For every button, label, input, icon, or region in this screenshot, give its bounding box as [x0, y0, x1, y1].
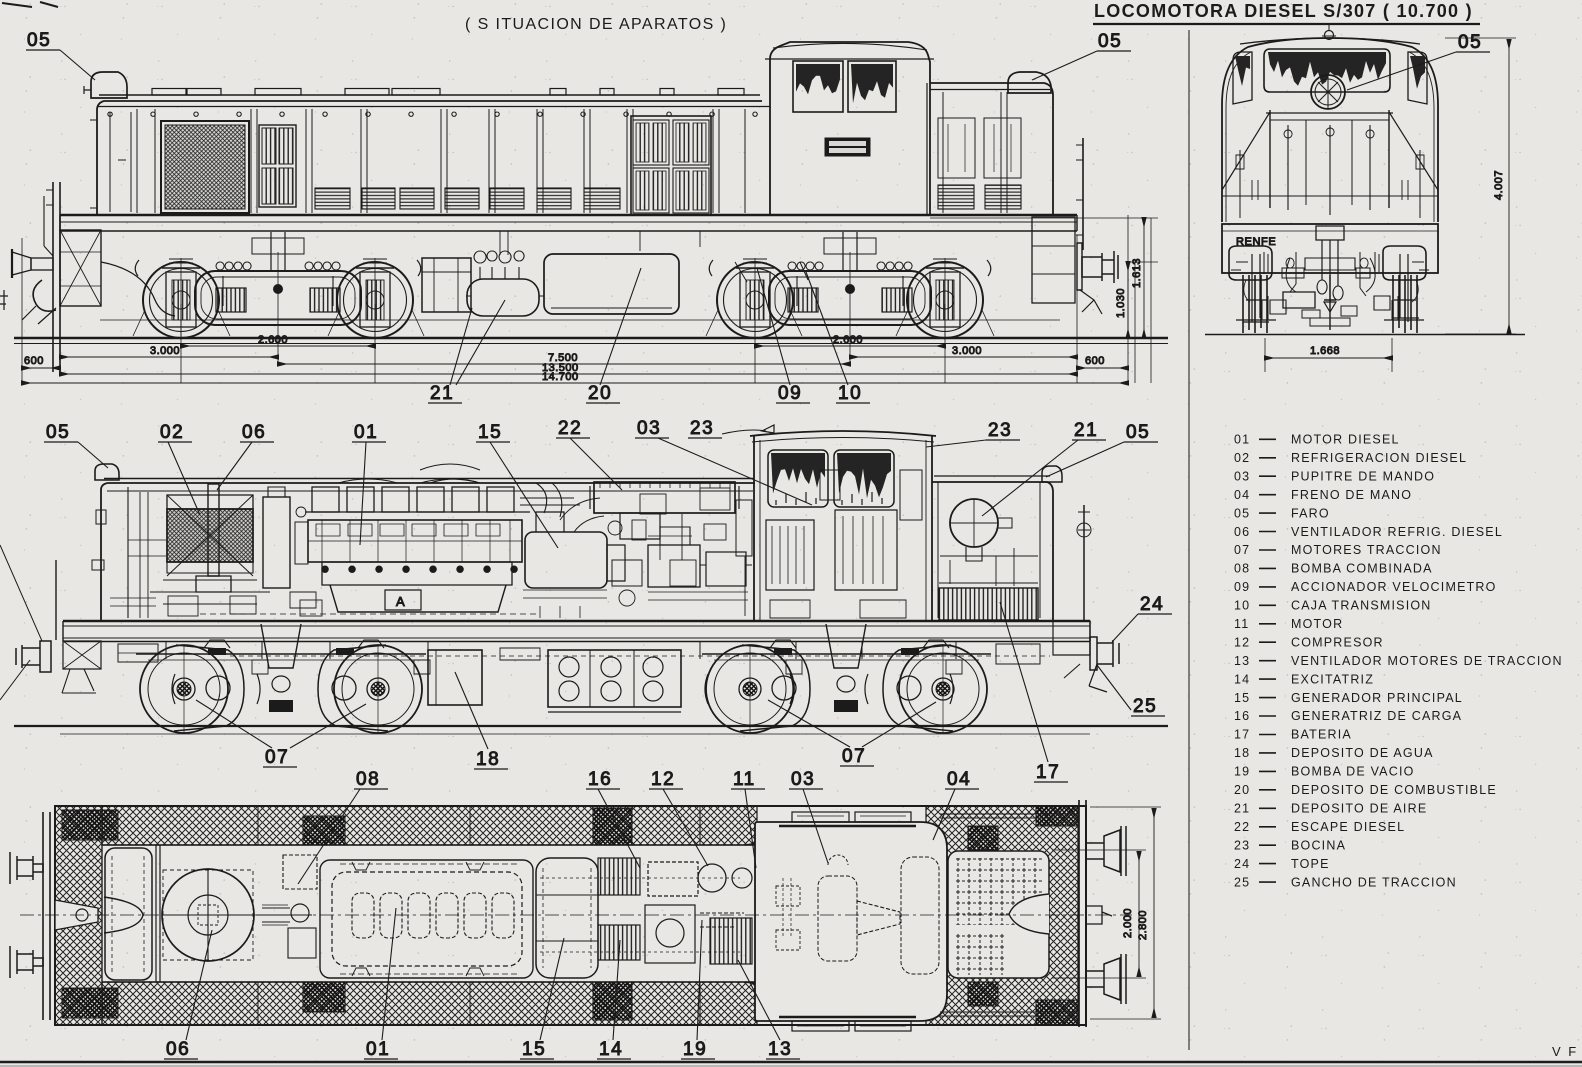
svg-text:FRENO DE MANO: FRENO DE MANO — [1291, 488, 1412, 502]
svg-text:ESCAPE DIESEL: ESCAPE DIESEL — [1291, 820, 1405, 834]
svg-text:GENERADOR PRINCIPAL: GENERADOR PRINCIPAL — [1291, 691, 1463, 705]
svg-text:14.700: 14.700 — [542, 371, 579, 383]
svg-text:600: 600 — [24, 355, 44, 367]
svg-text:4.007: 4.007 — [1493, 170, 1505, 200]
svg-text:12: 12 — [1234, 636, 1250, 650]
svg-text:3.000: 3.000 — [952, 345, 982, 357]
svg-text:17: 17 — [1036, 762, 1060, 783]
svg-text:3.000: 3.000 — [150, 345, 180, 357]
svg-text:DEPOSITO DE AGUA: DEPOSITO DE AGUA — [1291, 746, 1434, 760]
svg-text:15: 15 — [522, 1039, 546, 1060]
svg-text:05: 05 — [27, 30, 51, 51]
svg-text:15: 15 — [1234, 691, 1250, 705]
svg-text:GANCHO DE TRACCION: GANCHO DE TRACCION — [1291, 875, 1457, 889]
svg-text:19: 19 — [683, 1039, 707, 1060]
svg-text:06: 06 — [242, 422, 266, 443]
svg-text:21: 21 — [1074, 420, 1098, 441]
svg-text:15: 15 — [478, 422, 502, 443]
svg-text:FARO: FARO — [1291, 506, 1330, 520]
svg-text:DEPOSITO DE COMBUSTIBLE: DEPOSITO DE COMBUSTIBLE — [1291, 783, 1497, 797]
svg-text:04: 04 — [947, 769, 971, 790]
svg-text:23: 23 — [988, 420, 1012, 441]
svg-text:1.668: 1.668 — [1310, 345, 1340, 357]
svg-text:CAJA TRANSMISION: CAJA TRANSMISION — [1291, 599, 1432, 613]
svg-text:21: 21 — [430, 383, 454, 404]
svg-text:06: 06 — [1234, 525, 1250, 539]
svg-text:20: 20 — [588, 383, 612, 404]
svg-text:MOTOR DIESEL: MOTOR DIESEL — [1291, 433, 1400, 447]
svg-text:A: A — [396, 594, 405, 609]
svg-text:02: 02 — [1234, 451, 1250, 465]
svg-text:04: 04 — [1234, 488, 1250, 502]
svg-text:600: 600 — [1085, 355, 1105, 367]
svg-text:01: 01 — [1234, 433, 1250, 447]
svg-text:07: 07 — [842, 746, 866, 767]
svg-text:23: 23 — [690, 418, 714, 439]
svg-text:01: 01 — [354, 422, 378, 443]
svg-text:22: 22 — [1234, 820, 1250, 834]
svg-text:25: 25 — [1234, 875, 1250, 889]
svg-text:EXCITATRIZ: EXCITATRIZ — [1291, 672, 1374, 686]
svg-text:BOMBA COMBINADA: BOMBA COMBINADA — [1291, 562, 1433, 576]
svg-text:08: 08 — [1234, 562, 1250, 576]
svg-text:DEPOSITO DE AIRE: DEPOSITO DE AIRE — [1291, 802, 1427, 816]
svg-text:13: 13 — [768, 1039, 792, 1060]
svg-text:ACCIONADOR VELOCIMETRO: ACCIONADOR VELOCIMETRO — [1291, 580, 1497, 594]
svg-text:11: 11 — [1234, 617, 1249, 631]
svg-text:25: 25 — [1133, 696, 1157, 717]
svg-text:05: 05 — [1234, 506, 1250, 520]
svg-text:GENERATRIZ DE CARGA: GENERATRIZ DE CARGA — [1291, 709, 1462, 723]
svg-text:12: 12 — [651, 769, 675, 790]
svg-text:06: 06 — [166, 1039, 190, 1060]
svg-text:10: 10 — [838, 383, 862, 404]
svg-text:05: 05 — [1458, 32, 1482, 53]
svg-text:19: 19 — [1234, 765, 1250, 779]
svg-text:22: 22 — [558, 418, 582, 439]
svg-text:2.800: 2.800 — [1137, 910, 1149, 940]
svg-text:VENTILADOR MOTORES DE TRACCI: VENTILADOR MOTORES DE TRACCION — [1291, 654, 1563, 668]
svg-text:MOTORES TRACCION: MOTORES TRACCION — [1291, 543, 1442, 557]
svg-text:10: 10 — [1234, 599, 1250, 613]
svg-text:BOMBA DE VACIO: BOMBA DE VACIO — [1291, 765, 1415, 779]
svg-text:MOTOR: MOTOR — [1291, 617, 1343, 631]
svg-text:07: 07 — [1234, 543, 1250, 557]
svg-text:20: 20 — [1234, 783, 1250, 797]
svg-text:03: 03 — [1234, 469, 1250, 483]
svg-text:07: 07 — [265, 747, 289, 768]
svg-text:REFRIGERACION DIESEL: REFRIGERACION DIESEL — [1291, 451, 1467, 465]
svg-text:BATERIA: BATERIA — [1291, 728, 1352, 742]
svg-text:1.030: 1.030 — [1115, 288, 1127, 318]
svg-text:17: 17 — [1234, 728, 1250, 742]
svg-text:VENTILADOR REFRIG. DIESEL: VENTILADOR REFRIG. DIESEL — [1291, 525, 1503, 539]
svg-text:05: 05 — [1126, 422, 1150, 443]
svg-text:23: 23 — [1234, 838, 1250, 852]
svg-text:BOCINA: BOCINA — [1291, 838, 1346, 852]
svg-text:21: 21 — [1234, 802, 1250, 816]
svg-text:( S ITUACION DE APARATOS ): ( S ITUACION DE APARATOS ) — [465, 16, 727, 33]
svg-text:2.000: 2.000 — [1122, 908, 1134, 938]
svg-text:TOPE: TOPE — [1291, 857, 1330, 871]
svg-text:LOCOMOTORA DIESEL S/307 (: LOCOMOTORA DIESEL S/307 ( 10.700 ) — [1094, 1, 1473, 21]
svg-text:V F: V F — [1552, 1044, 1578, 1059]
svg-text:24: 24 — [1234, 857, 1250, 871]
svg-text:1.613: 1.613 — [1131, 258, 1143, 288]
svg-text:03: 03 — [791, 769, 815, 790]
svg-text:11: 11 — [733, 769, 756, 790]
svg-text:08: 08 — [356, 769, 380, 790]
svg-text:05: 05 — [1098, 31, 1122, 52]
svg-text:03: 03 — [637, 418, 661, 439]
svg-text:09: 09 — [778, 383, 802, 404]
svg-text:2.600: 2.600 — [833, 334, 863, 346]
svg-text:13: 13 — [1234, 654, 1250, 668]
svg-text:24: 24 — [1140, 594, 1164, 615]
svg-text:09: 09 — [1234, 580, 1250, 594]
svg-text:05: 05 — [46, 422, 70, 443]
svg-text:18: 18 — [476, 749, 500, 770]
svg-text:PUPITRE DE MANDO: PUPITRE DE MANDO — [1291, 469, 1435, 483]
svg-text:16: 16 — [588, 769, 612, 790]
svg-text:18: 18 — [1234, 746, 1250, 760]
svg-text:01: 01 — [366, 1039, 390, 1060]
svg-text:16: 16 — [1234, 709, 1250, 723]
svg-text:14: 14 — [1234, 672, 1250, 686]
svg-text:14: 14 — [599, 1039, 623, 1060]
svg-text:02: 02 — [160, 422, 184, 443]
svg-text:2.600: 2.600 — [258, 334, 288, 346]
svg-text:COMPRESOR: COMPRESOR — [1291, 636, 1384, 650]
